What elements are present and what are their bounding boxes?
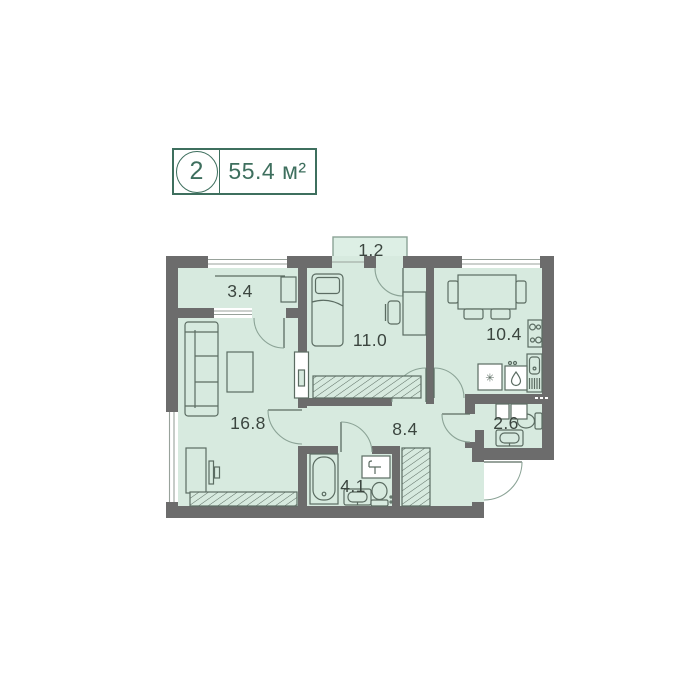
floorplan-card: 2 55.4 м² [0,0,700,700]
window-loggia-separator [214,308,252,318]
desk-chair-icon [388,301,400,324]
washing-machine-icon [362,456,390,478]
chair-icon [464,309,483,319]
bathtub-icon [310,454,338,504]
window-kitchen [462,256,540,268]
room-area-label-loggia: 3.4 [227,281,253,301]
room-area-label-kitchen: 10.4 [486,324,522,344]
room-area-label-bathroom: 4.1 [340,476,366,496]
room-area-label-bedroom: 11.0 [353,330,387,350]
kitchen-sink-icon [527,354,542,392]
dishwasher-icon: ✳ [478,364,502,390]
loggia-cabinet-icon [281,277,296,302]
asterisk-glyph: ✳ [485,372,494,385]
living-wardrobe-icon [190,492,297,506]
wall-vent-dashes [535,397,538,399]
floor-plan: ✳ [0,0,700,700]
room-area-label-hallway: 8.4 [392,419,418,439]
coffee-table-icon [227,352,253,392]
bedroom-wardrobe-icon [313,376,421,398]
bathroom-contents [310,448,430,506]
room-area-label-wc: 2.6 [493,413,519,433]
window-loggia-top [208,256,287,268]
room-area-label-balcony: 1.2 [358,240,384,260]
chair-icon [491,309,510,319]
sofa-icon [185,322,218,416]
sliding-door-niche [295,352,309,398]
chair-icon [448,281,458,303]
hall-closet-icon [402,448,430,506]
chair-icon [516,281,526,303]
stove-icon [528,320,542,347]
bed-icon [312,274,343,346]
fridge-icon [505,362,527,391]
window-living [166,412,178,502]
entrance-door [484,462,522,500]
room-area-label-living: 16.8 [230,413,266,433]
tv-icon [209,461,214,484]
